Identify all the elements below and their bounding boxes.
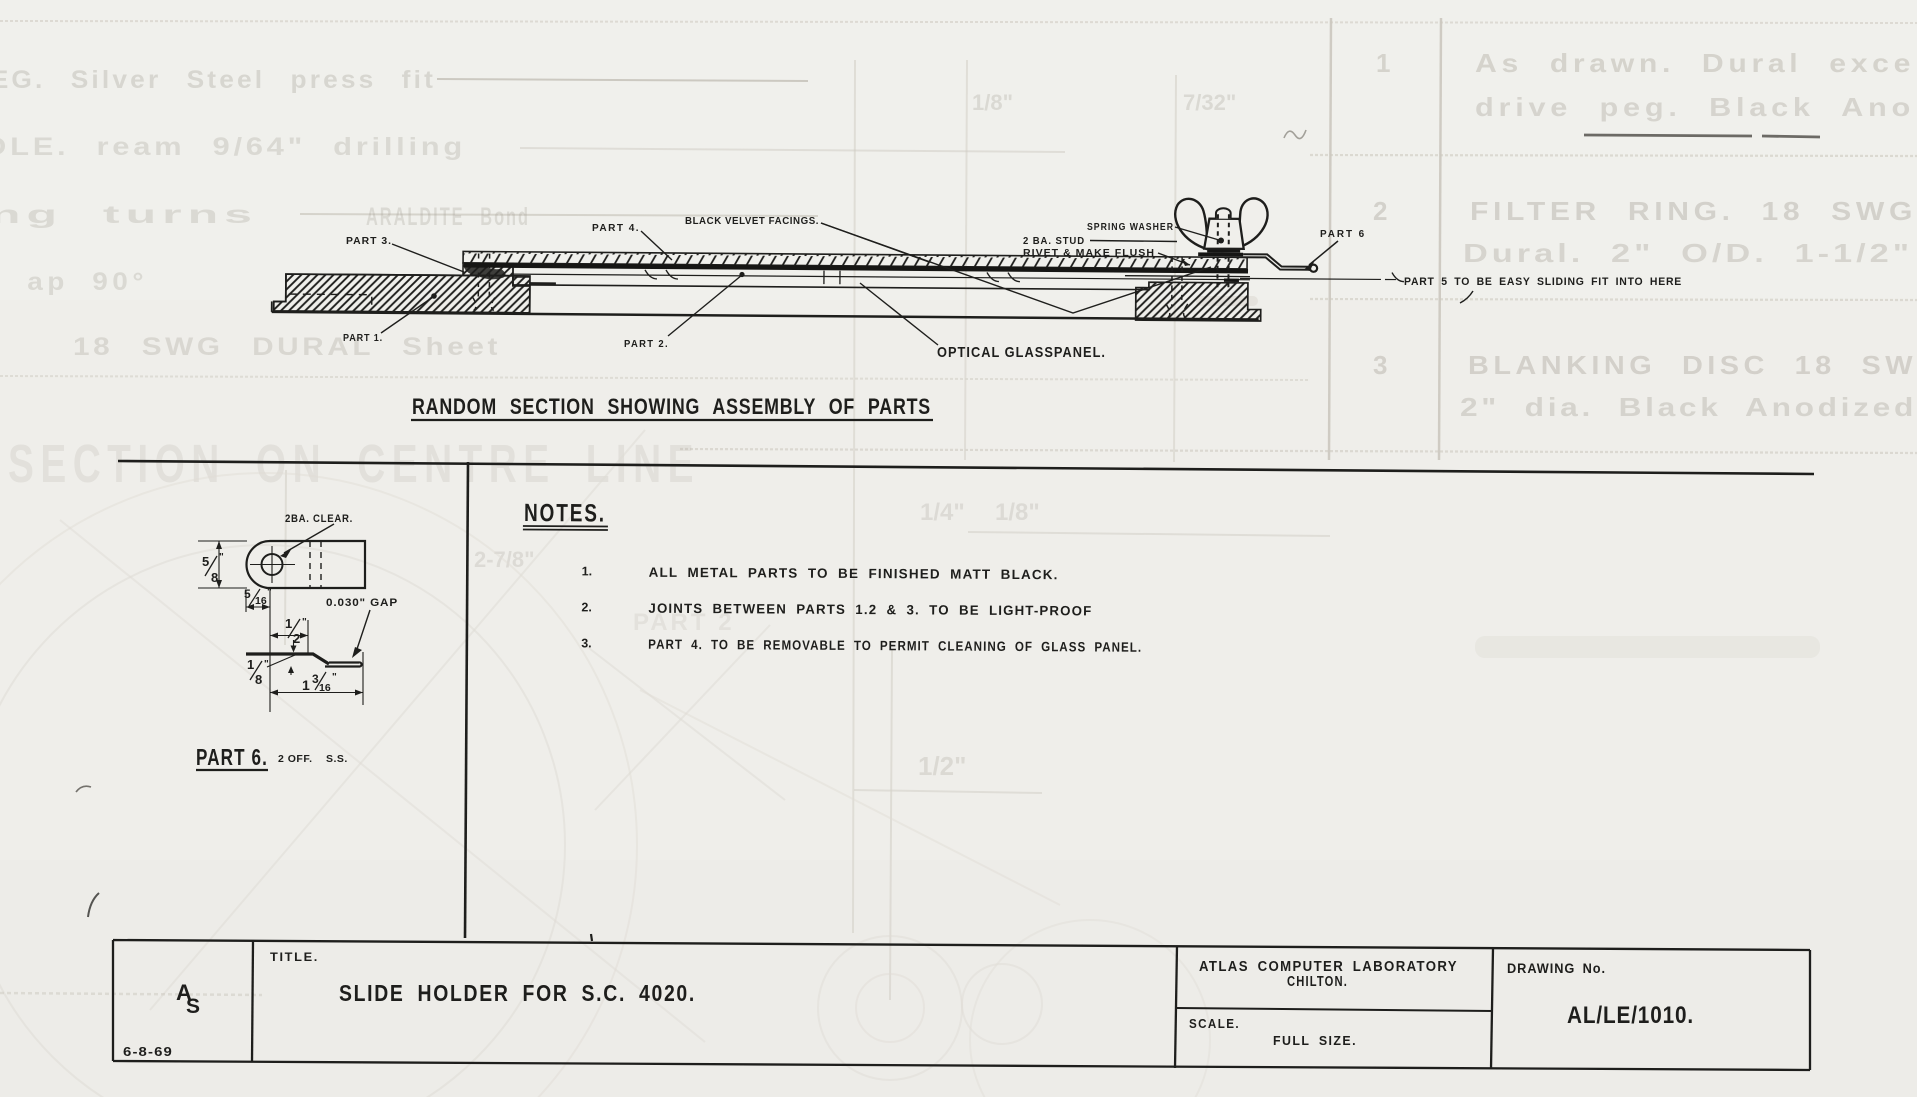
svg-text:ATLAS COMPUTER LABORATORY: ATLAS COMPUTER LABORATORY — [1199, 959, 1458, 975]
svg-text:5: 5 — [202, 554, 209, 569]
svg-text:1/2": 1/2" — [918, 751, 966, 781]
svg-text:S.S.: S.S. — [326, 753, 348, 765]
svg-text:S: S — [186, 995, 200, 1018]
svg-text:0.030" GAP: 0.030" GAP — [326, 597, 398, 609]
svg-text:2: 2 — [293, 631, 300, 646]
svg-text:SCALE.: SCALE. — [1189, 1017, 1240, 1031]
svg-text:2BA. CLEAR.: 2BA. CLEAR. — [285, 513, 353, 525]
svg-text:IOLE. ream 9/64" drilling: IOLE. ream 9/64" drilling — [0, 133, 466, 161]
svg-text:NOTES.: NOTES. — [524, 499, 606, 528]
svg-text:AL/LE/1010.: AL/LE/1010. — [1567, 1002, 1694, 1029]
svg-text:1: 1 — [247, 657, 254, 672]
svg-text:PART 2.: PART 2. — [624, 338, 669, 350]
svg-text:drive peg. Black Ano: drive peg. Black Ano — [1475, 92, 1915, 122]
svg-text:at ap 90°: at ap 90° — [0, 268, 148, 296]
svg-text:8: 8 — [255, 672, 262, 687]
svg-text:SLIDE HOLDER FOR S.C. 4020.: SLIDE HOLDER FOR S.C. 4020. — [339, 980, 696, 1006]
svg-text:RIVET & MAKE FLUSH: RIVET & MAKE FLUSH — [1023, 247, 1155, 259]
svg-text:ing turns: ing turns — [0, 201, 258, 229]
svg-text:Dural. 2" O/D. 1-1/2": Dural. 2" O/D. 1-1/2" — [1463, 238, 1913, 268]
svg-text:PART 4.: PART 4. — [592, 222, 640, 234]
svg-text:1/8": 1/8" — [995, 499, 1040, 526]
svg-text:CHILTON.: CHILTON. — [1287, 974, 1348, 990]
svg-text:": " — [302, 617, 307, 628]
svg-text:18 SWG DURAL Sheet: 18 SWG DURAL Sheet — [73, 333, 501, 361]
svg-text:PEG. Silver Steel press fit: PEG. Silver Steel press fit — [0, 66, 436, 94]
svg-text:1.: 1. — [582, 564, 593, 578]
svg-text:2" dia. Black Anodized: 2" dia. Black Anodized — [1460, 392, 1917, 422]
svg-text:PART 6.: PART 6. — [196, 744, 268, 770]
svg-text:1: 1 — [302, 677, 310, 693]
svg-text:OPTICAL GLASSPANEL.: OPTICAL GLASSPANEL. — [937, 344, 1106, 361]
svg-text:1: 1 — [285, 616, 292, 631]
svg-text:": " — [332, 672, 337, 683]
svg-text:PART 6: PART 6 — [1320, 228, 1366, 240]
svg-text:1: 1 — [1376, 48, 1390, 78]
svg-text:1/8": 1/8" — [972, 90, 1013, 115]
svg-text:PART 1.: PART 1. — [343, 332, 383, 344]
svg-text:TITLE.: TITLE. — [270, 952, 319, 964]
svg-text:2 OFF.: 2 OFF. — [278, 753, 313, 765]
svg-text:": " — [264, 659, 269, 670]
svg-text:8: 8 — [211, 570, 218, 585]
svg-text:3: 3 — [1373, 350, 1387, 380]
svg-text:FILTER RING. 18 SWG: FILTER RING. 18 SWG — [1470, 196, 1917, 226]
svg-text:JOINTS BETWEEN PARTS 1.2 & 3.: JOINTS BETWEEN PARTS 1.2 & 3. TO BE LIGH… — [648, 601, 1092, 619]
svg-text:PART 4. TO BE REMOVABLE TO PER: PART 4. TO BE REMOVABLE TO PERMIT CLEANI… — [648, 637, 1142, 655]
svg-text:": " — [219, 552, 224, 563]
svg-text:2.: 2. — [581, 600, 592, 614]
svg-text:ARALDITE Bond: ARALDITE Bond — [366, 203, 530, 231]
svg-text:As drawn. Dural exce: As drawn. Dural exce — [1475, 48, 1915, 78]
svg-text:SPRING WASHER: SPRING WASHER — [1087, 221, 1174, 233]
svg-text:5: 5 — [244, 587, 251, 601]
svg-text:3: 3 — [312, 672, 319, 686]
svg-text:BLACK VELVET FACINGS.: BLACK VELVET FACINGS. — [685, 215, 819, 227]
svg-text:DRAWING No.: DRAWING No. — [1507, 961, 1606, 976]
svg-text:1/4": 1/4" — [920, 499, 965, 526]
svg-text:7/32": 7/32" — [1183, 90, 1236, 115]
svg-text:RANDOM SECTION SHOWING ASSEMBL: RANDOM SECTION SHOWING ASSEMBLY OF PARTS — [412, 394, 931, 419]
svg-text:BLANKING DISC 18 SW: BLANKING DISC 18 SW — [1468, 350, 1917, 380]
svg-text:FULL SIZE.: FULL SIZE. — [1273, 1033, 1357, 1048]
svg-text:PART 3.: PART 3. — [346, 235, 392, 247]
svg-text:ALL METAL PARTS TO BE FINISHED: ALL METAL PARTS TO BE FINISHED MATT BLAC… — [649, 565, 1059, 583]
svg-text:": " — [267, 587, 272, 598]
svg-text:2: 2 — [1373, 196, 1387, 226]
svg-text:PART 5 TO BE EASY SLIDING FIT: PART 5 TO BE EASY SLIDING FIT INTO HERE — [1404, 276, 1682, 288]
svg-text:2 BA. STUD: 2 BA. STUD — [1023, 235, 1085, 247]
svg-text:3.: 3. — [581, 636, 592, 650]
svg-text:6-8-69: 6-8-69 — [123, 1044, 173, 1059]
